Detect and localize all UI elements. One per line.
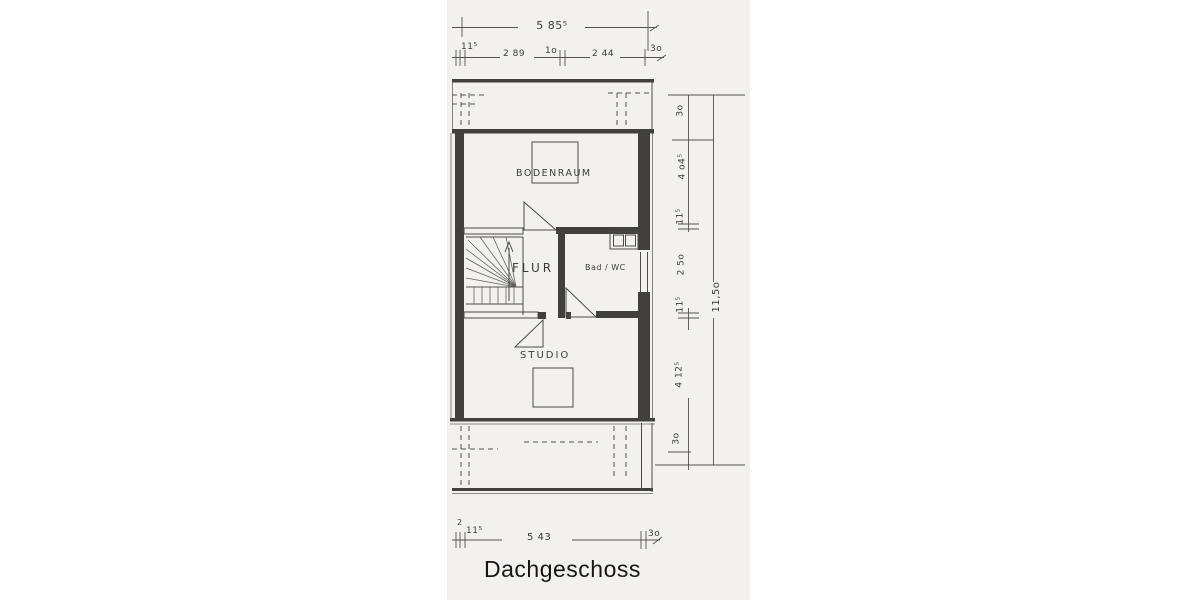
room-label-bad-wc: Bad / WC bbox=[585, 264, 626, 272]
floorplan-drawing bbox=[0, 0, 1200, 600]
dim-top-c: 1o bbox=[545, 47, 557, 56]
dim-bottom-d: 3o bbox=[648, 530, 660, 539]
room-label-flur: FLUR bbox=[512, 262, 554, 274]
studio-skylight bbox=[533, 368, 573, 407]
dim-bottom-b: 11⁵ bbox=[466, 527, 483, 536]
dimension-lines-right bbox=[655, 95, 745, 470]
staircase bbox=[466, 237, 523, 315]
dim-right-g: 3o bbox=[673, 399, 682, 479]
dimension-lines-bottom bbox=[452, 531, 662, 549]
bottom-eaves-band bbox=[452, 423, 653, 494]
door-studio bbox=[515, 320, 543, 347]
dim-top-a: 11⁵ bbox=[461, 43, 478, 52]
bath-fixtures bbox=[610, 232, 638, 249]
dim-top-d: 2 44 bbox=[592, 50, 614, 59]
plan-title: Dachgeschoss bbox=[484, 556, 641, 583]
dim-top-b: 2 89 bbox=[503, 50, 525, 59]
window bbox=[641, 252, 648, 292]
floorplan-page: BODENRAUM FLUR Bad / WC STUDIO 5 85⁵ 11⁵… bbox=[0, 0, 1200, 600]
dim-right-total: 11,5o bbox=[712, 257, 722, 337]
top-eaves-band bbox=[452, 79, 654, 134]
dim-right-e: 11⁵ bbox=[677, 265, 686, 345]
dim-top-e: 3o bbox=[650, 45, 662, 54]
room-label-bodenraum: BODENRAUM bbox=[516, 169, 592, 179]
door-bodenraum bbox=[524, 202, 556, 230]
room-label-studio: STUDIO bbox=[520, 351, 570, 361]
dim-top-total: 5 85⁵ bbox=[520, 20, 584, 31]
dim-bottom-a: 2 bbox=[457, 519, 463, 527]
dim-bottom-c: 5 43 bbox=[527, 533, 551, 543]
